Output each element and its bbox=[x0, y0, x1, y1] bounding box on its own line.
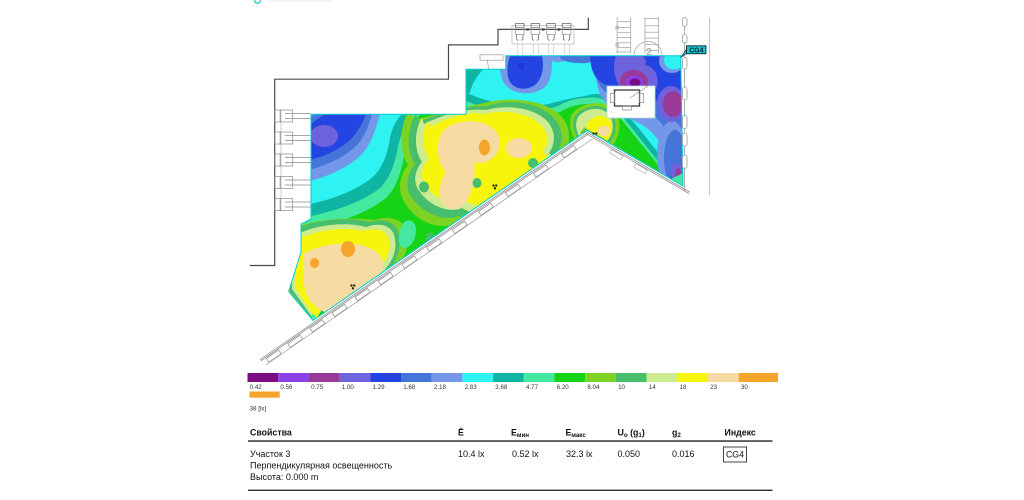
svg-text:30: 30 bbox=[741, 384, 748, 391]
svg-text:2: 2 bbox=[646, 46, 652, 58]
svg-text:2.18: 2.18 bbox=[434, 384, 447, 391]
svg-text:Eмакс: Eмакс bbox=[566, 428, 587, 440]
svg-text:0.75: 0.75 bbox=[311, 384, 324, 391]
svg-text:6.20: 6.20 bbox=[557, 384, 570, 391]
svg-text:23: 23 bbox=[710, 384, 717, 391]
svg-text:4.77: 4.77 bbox=[526, 384, 539, 391]
svg-text:Индекс: Индекс bbox=[725, 428, 756, 438]
svg-text:CG4: CG4 bbox=[726, 450, 744, 460]
svg-text:0.56: 0.56 bbox=[280, 384, 293, 391]
svg-text:38 [lx]: 38 [lx] bbox=[250, 406, 267, 413]
svg-text:10: 10 bbox=[618, 384, 625, 391]
svg-text:Перпендикулярная освещенность: Перпендикулярная освещенность bbox=[250, 461, 392, 471]
svg-text:Ē: Ē bbox=[458, 428, 464, 438]
svg-text:Eмин: Eмин bbox=[511, 428, 529, 440]
svg-text:14: 14 bbox=[649, 384, 656, 391]
svg-text:Uo (g1): Uo (g1) bbox=[618, 428, 645, 440]
svg-text:g2: g2 bbox=[672, 428, 681, 440]
svg-text:32.3 lx: 32.3 lx bbox=[566, 449, 593, 459]
svg-text:Свойства: Свойства bbox=[250, 428, 292, 438]
svg-text:Участок 3: Участок 3 bbox=[250, 449, 290, 459]
svg-text:2.83: 2.83 bbox=[465, 384, 478, 391]
svg-text:1.00: 1.00 bbox=[342, 384, 355, 391]
svg-text:CG4: CG4 bbox=[689, 47, 703, 54]
svg-text:1.68: 1.68 bbox=[403, 384, 416, 391]
svg-text:0.42: 0.42 bbox=[250, 384, 263, 391]
svg-text:0.016: 0.016 bbox=[672, 449, 695, 459]
svg-text:3.68: 3.68 bbox=[495, 384, 508, 391]
svg-text:0.050: 0.050 bbox=[618, 449, 641, 459]
svg-text:0.52 lx: 0.52 lx bbox=[512, 449, 539, 459]
svg-text:Высота: 0.000 m: Высота: 0.000 m bbox=[250, 472, 318, 482]
svg-text:18: 18 bbox=[680, 384, 687, 391]
svg-text:10.4 lx: 10.4 lx bbox=[458, 449, 485, 459]
svg-text:1.29: 1.29 bbox=[373, 384, 386, 391]
svg-text:8.04: 8.04 bbox=[587, 384, 600, 391]
